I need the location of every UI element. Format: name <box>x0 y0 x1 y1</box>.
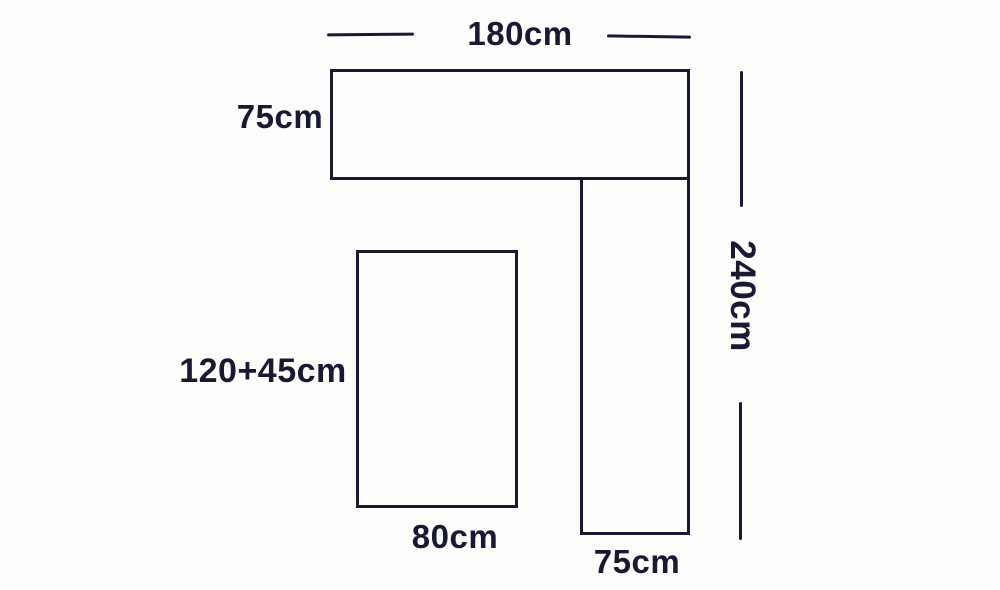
top-dimension-line-right-segment <box>607 34 691 38</box>
right-vertical-rectangle-outline <box>580 180 690 535</box>
right-dimension-line-lower-segment <box>739 402 742 540</box>
dimension-diagram: 180cm 75cm 240cm 120+45cm 80cm 75cm <box>0 0 1000 590</box>
right-rect-width-dimension-label: 75cm <box>567 542 707 582</box>
top-rect-height-dimension-label: 75cm <box>210 97 350 137</box>
top-dimension-line-left-segment <box>327 33 414 37</box>
top-rectangle-outline <box>330 69 690 180</box>
right-total-height-dimension-text: 240cm <box>722 240 762 351</box>
right-dimension-line-upper-segment <box>740 71 743 207</box>
left-rect-height-dimension-label: 120+45cm <box>163 351 363 391</box>
left-rectangle-outline <box>356 250 518 508</box>
left-rect-width-dimension-label: 80cm <box>385 517 525 557</box>
top-width-dimension-label: 180cm <box>440 14 600 54</box>
